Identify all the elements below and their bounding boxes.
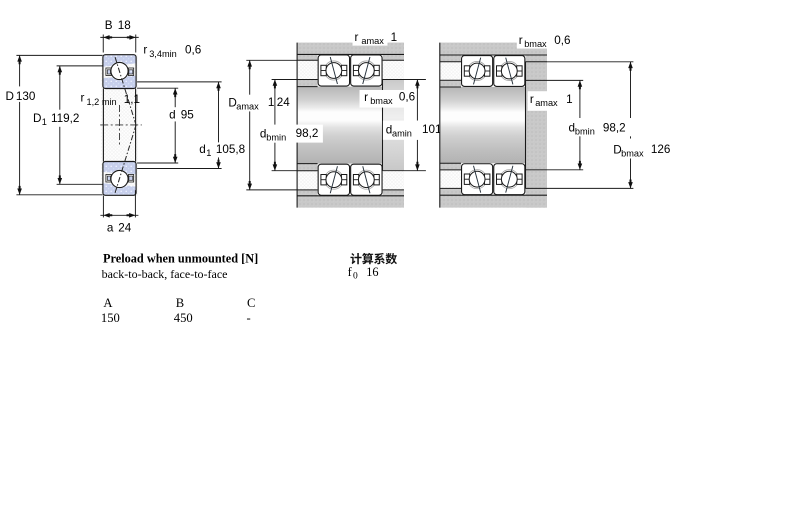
svg-text:A: A <box>103 296 112 310</box>
svg-text:bmax: bmax <box>524 39 547 49</box>
svg-text:r: r <box>364 91 368 104</box>
svg-text:119,2: 119,2 <box>51 112 79 125</box>
svg-text:bmax: bmax <box>370 96 393 106</box>
svg-text:1: 1 <box>268 96 275 109</box>
svg-text:bmax: bmax <box>621 148 644 158</box>
svg-text:105,8: 105,8 <box>216 143 245 156</box>
svg-text:1: 1 <box>206 148 211 158</box>
svg-text:amax: amax <box>236 102 259 112</box>
svg-text:a: a <box>107 221 114 234</box>
svg-text:amax: amax <box>361 36 384 46</box>
svg-text:C: C <box>247 296 255 310</box>
svg-text:D: D <box>33 112 41 125</box>
svg-text:0: 0 <box>353 271 358 281</box>
svg-text:back-to-back, face-to-face: back-to-back, face-to-face <box>102 267 228 281</box>
svg-text:1: 1 <box>391 31 398 44</box>
svg-text:r: r <box>143 44 147 57</box>
svg-text:B: B <box>105 19 113 32</box>
svg-text:18: 18 <box>118 19 131 32</box>
svg-text:126: 126 <box>651 143 671 156</box>
svg-text:Preload when unmounted [N]: Preload when unmounted [N] <box>103 252 258 266</box>
svg-text:24: 24 <box>277 96 291 109</box>
svg-text:-: - <box>247 311 251 325</box>
svg-text:150: 150 <box>101 311 120 325</box>
svg-text:r: r <box>519 34 523 47</box>
svg-text:16: 16 <box>366 265 378 279</box>
svg-text:r: r <box>81 91 85 104</box>
svg-text:450: 450 <box>174 311 193 325</box>
svg-text:r: r <box>355 31 359 44</box>
svg-text:95: 95 <box>181 109 195 122</box>
svg-text:1: 1 <box>42 117 47 127</box>
svg-text:B: B <box>176 296 184 310</box>
svg-text:24: 24 <box>118 221 132 234</box>
svg-text:D: D <box>6 90 14 103</box>
svg-text:amin: amin <box>392 129 412 139</box>
svg-text:amax: amax <box>535 98 558 108</box>
svg-text:98,2: 98,2 <box>603 121 626 134</box>
svg-text:0,6: 0,6 <box>554 34 570 47</box>
svg-text:0,6: 0,6 <box>399 91 415 104</box>
svg-text:bmin: bmin <box>266 132 286 142</box>
svg-text:130: 130 <box>16 90 36 103</box>
svg-text:r: r <box>530 93 534 106</box>
svg-text:1: 1 <box>566 93 573 106</box>
svg-text:0,6: 0,6 <box>185 44 201 57</box>
svg-text:3,4min: 3,4min <box>149 49 177 59</box>
svg-text:d: d <box>169 109 176 122</box>
svg-text:1,1: 1,1 <box>124 93 140 106</box>
svg-text:bmin: bmin <box>575 127 595 137</box>
svg-text:1,2 min: 1,2 min <box>87 97 117 107</box>
svg-text:101: 101 <box>422 123 442 136</box>
svg-text:98,2: 98,2 <box>296 127 319 140</box>
svg-text:d: d <box>199 143 206 156</box>
